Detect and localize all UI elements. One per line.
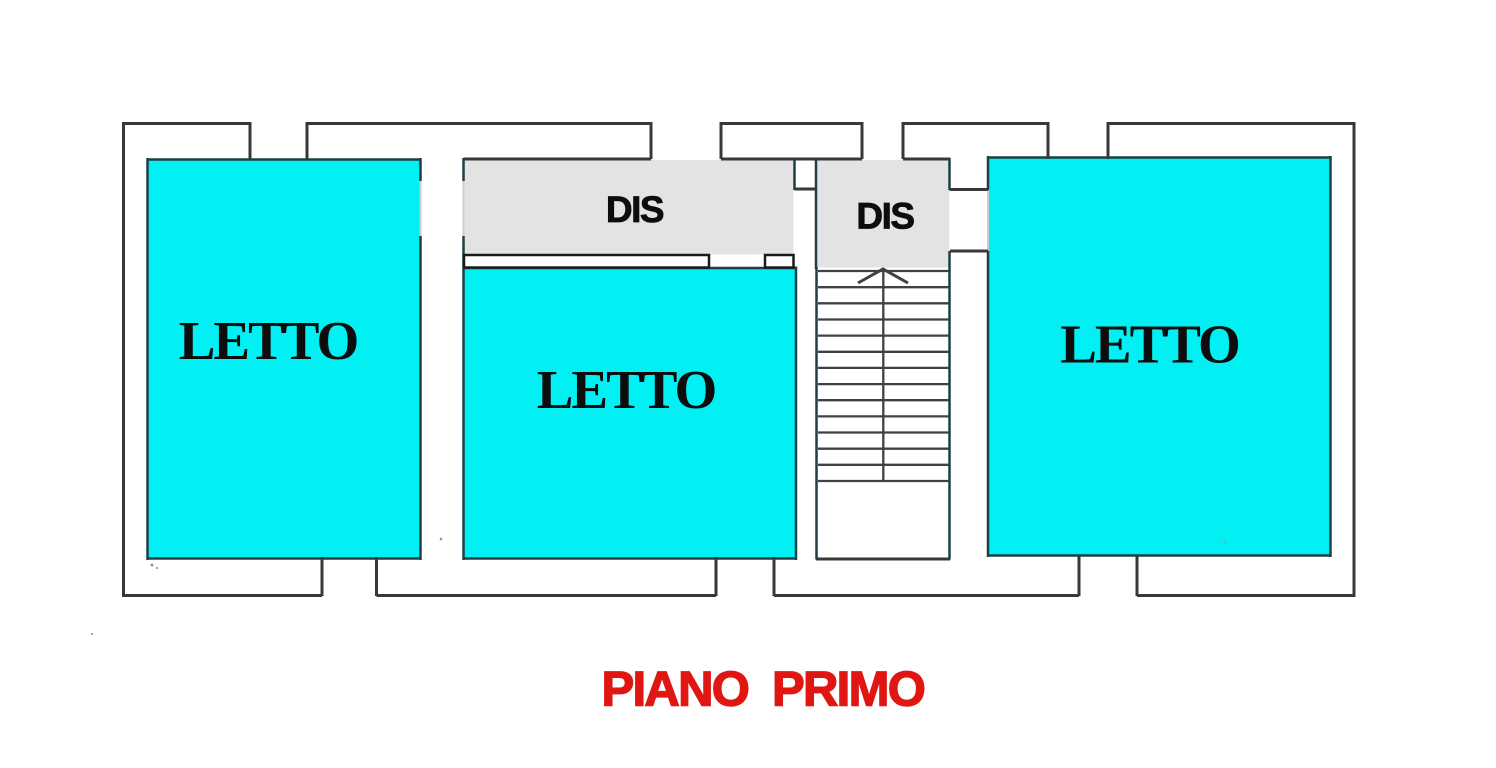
svg-text:DIS: DIS (606, 189, 664, 230)
svg-text:LETTO: LETTO (179, 310, 358, 371)
svg-text:LETTO: LETTO (1060, 314, 1239, 375)
svg-text:DIS: DIS (856, 196, 914, 237)
svg-text:LETTO: LETTO (537, 359, 716, 420)
svg-text:PIANO PRIMO: PIANO PRIMO (601, 663, 924, 717)
